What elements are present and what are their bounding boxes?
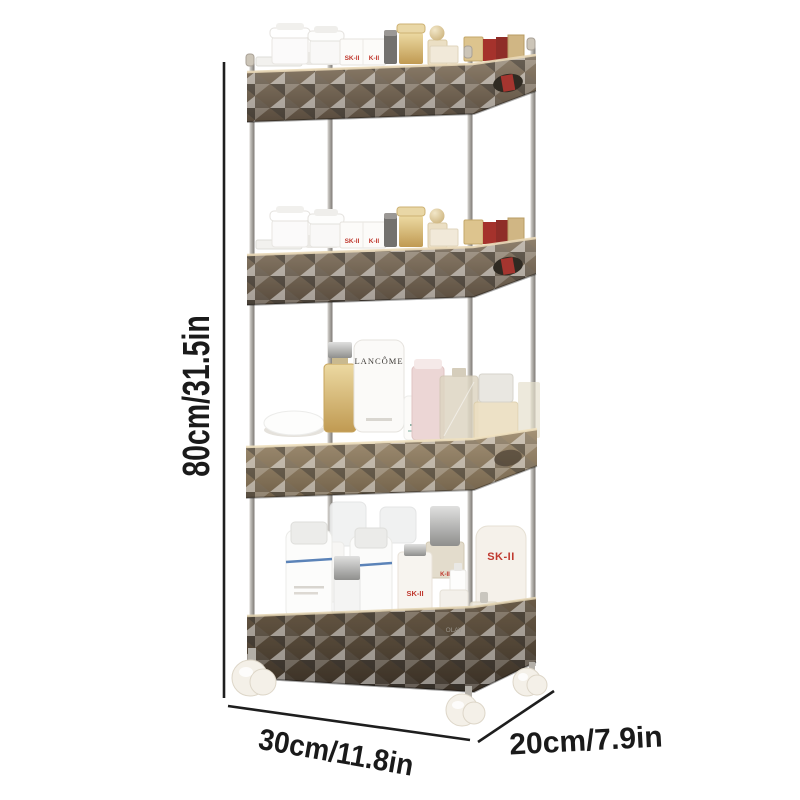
brand-text-tier4-jar: OLAY bbox=[446, 627, 464, 634]
product-photo: SK-II SK-II K-II OLAY LANCÔME bbox=[0, 0, 800, 800]
brand-text-tier1-box-left: SK-II bbox=[345, 55, 360, 62]
height-dimension-label: 80cm/31.5in bbox=[176, 315, 218, 477]
storage-cart-illustration: SK-II SK-II K-II OLAY LANCÔME bbox=[0, 0, 800, 800]
brand-text-tier2-box-left: SK-II bbox=[345, 238, 360, 245]
cart-pole-back-right bbox=[531, 44, 536, 666]
cart-pole-front-left bbox=[250, 60, 255, 652]
brand-text-tier2-box-right: K-II bbox=[369, 238, 380, 245]
brand-text-tier4-mid-bottle: K-II bbox=[440, 572, 450, 578]
brand-text-tier4-tube: SK-II bbox=[487, 551, 515, 563]
brand-text-lancome: LANCÔME bbox=[354, 356, 403, 366]
brand-text-tier1-box-right: K-II bbox=[369, 55, 380, 62]
brand-text-tier4-bottle: SK-II bbox=[406, 589, 423, 598]
